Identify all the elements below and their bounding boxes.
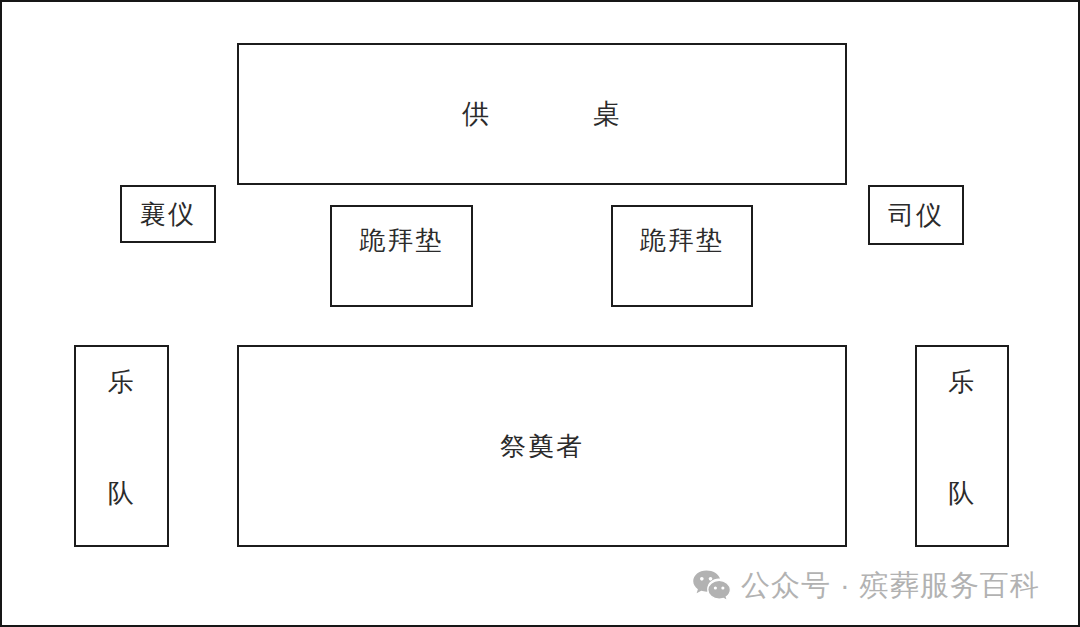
kneeling-mat-left-box: 跪拜垫 bbox=[330, 205, 473, 307]
xiangyi-box: 襄仪 bbox=[120, 185, 216, 243]
xiangyi-label: 襄仪 bbox=[140, 197, 196, 232]
siyi-box: 司仪 bbox=[868, 185, 964, 245]
kneeling-mat-right-box: 跪拜垫 bbox=[611, 205, 753, 307]
band-left-box: 乐 队 bbox=[74, 345, 169, 547]
mourners-label: 祭奠者 bbox=[500, 429, 584, 464]
band-left-char-bottom: 队 bbox=[108, 476, 136, 511]
offering-table-label-right: 桌 bbox=[593, 96, 622, 132]
watermark: 公众号 · 殡葬服务百科 bbox=[692, 565, 1040, 607]
band-right-char-bottom: 队 bbox=[948, 476, 976, 511]
kneeling-mat-right-label: 跪拜垫 bbox=[640, 223, 724, 258]
wechat-icon bbox=[692, 569, 732, 603]
band-right-char-top: 乐 bbox=[948, 365, 976, 400]
mourners-box: 祭奠者 bbox=[237, 345, 847, 547]
ceremony-layout-diagram: 供 桌 襄仪 司仪 跪拜垫 跪拜垫 祭奠者 乐 队 乐 队 bbox=[0, 0, 1080, 627]
siyi-label: 司仪 bbox=[888, 198, 944, 233]
offering-table-label-left: 供 bbox=[462, 96, 491, 132]
band-left-char-top: 乐 bbox=[108, 365, 136, 400]
band-right-box: 乐 队 bbox=[915, 345, 1009, 547]
offering-table-box: 供 桌 bbox=[237, 43, 847, 185]
kneeling-mat-left-label: 跪拜垫 bbox=[360, 223, 444, 258]
watermark-text: 公众号 · 殡葬服务百科 bbox=[741, 566, 1040, 606]
